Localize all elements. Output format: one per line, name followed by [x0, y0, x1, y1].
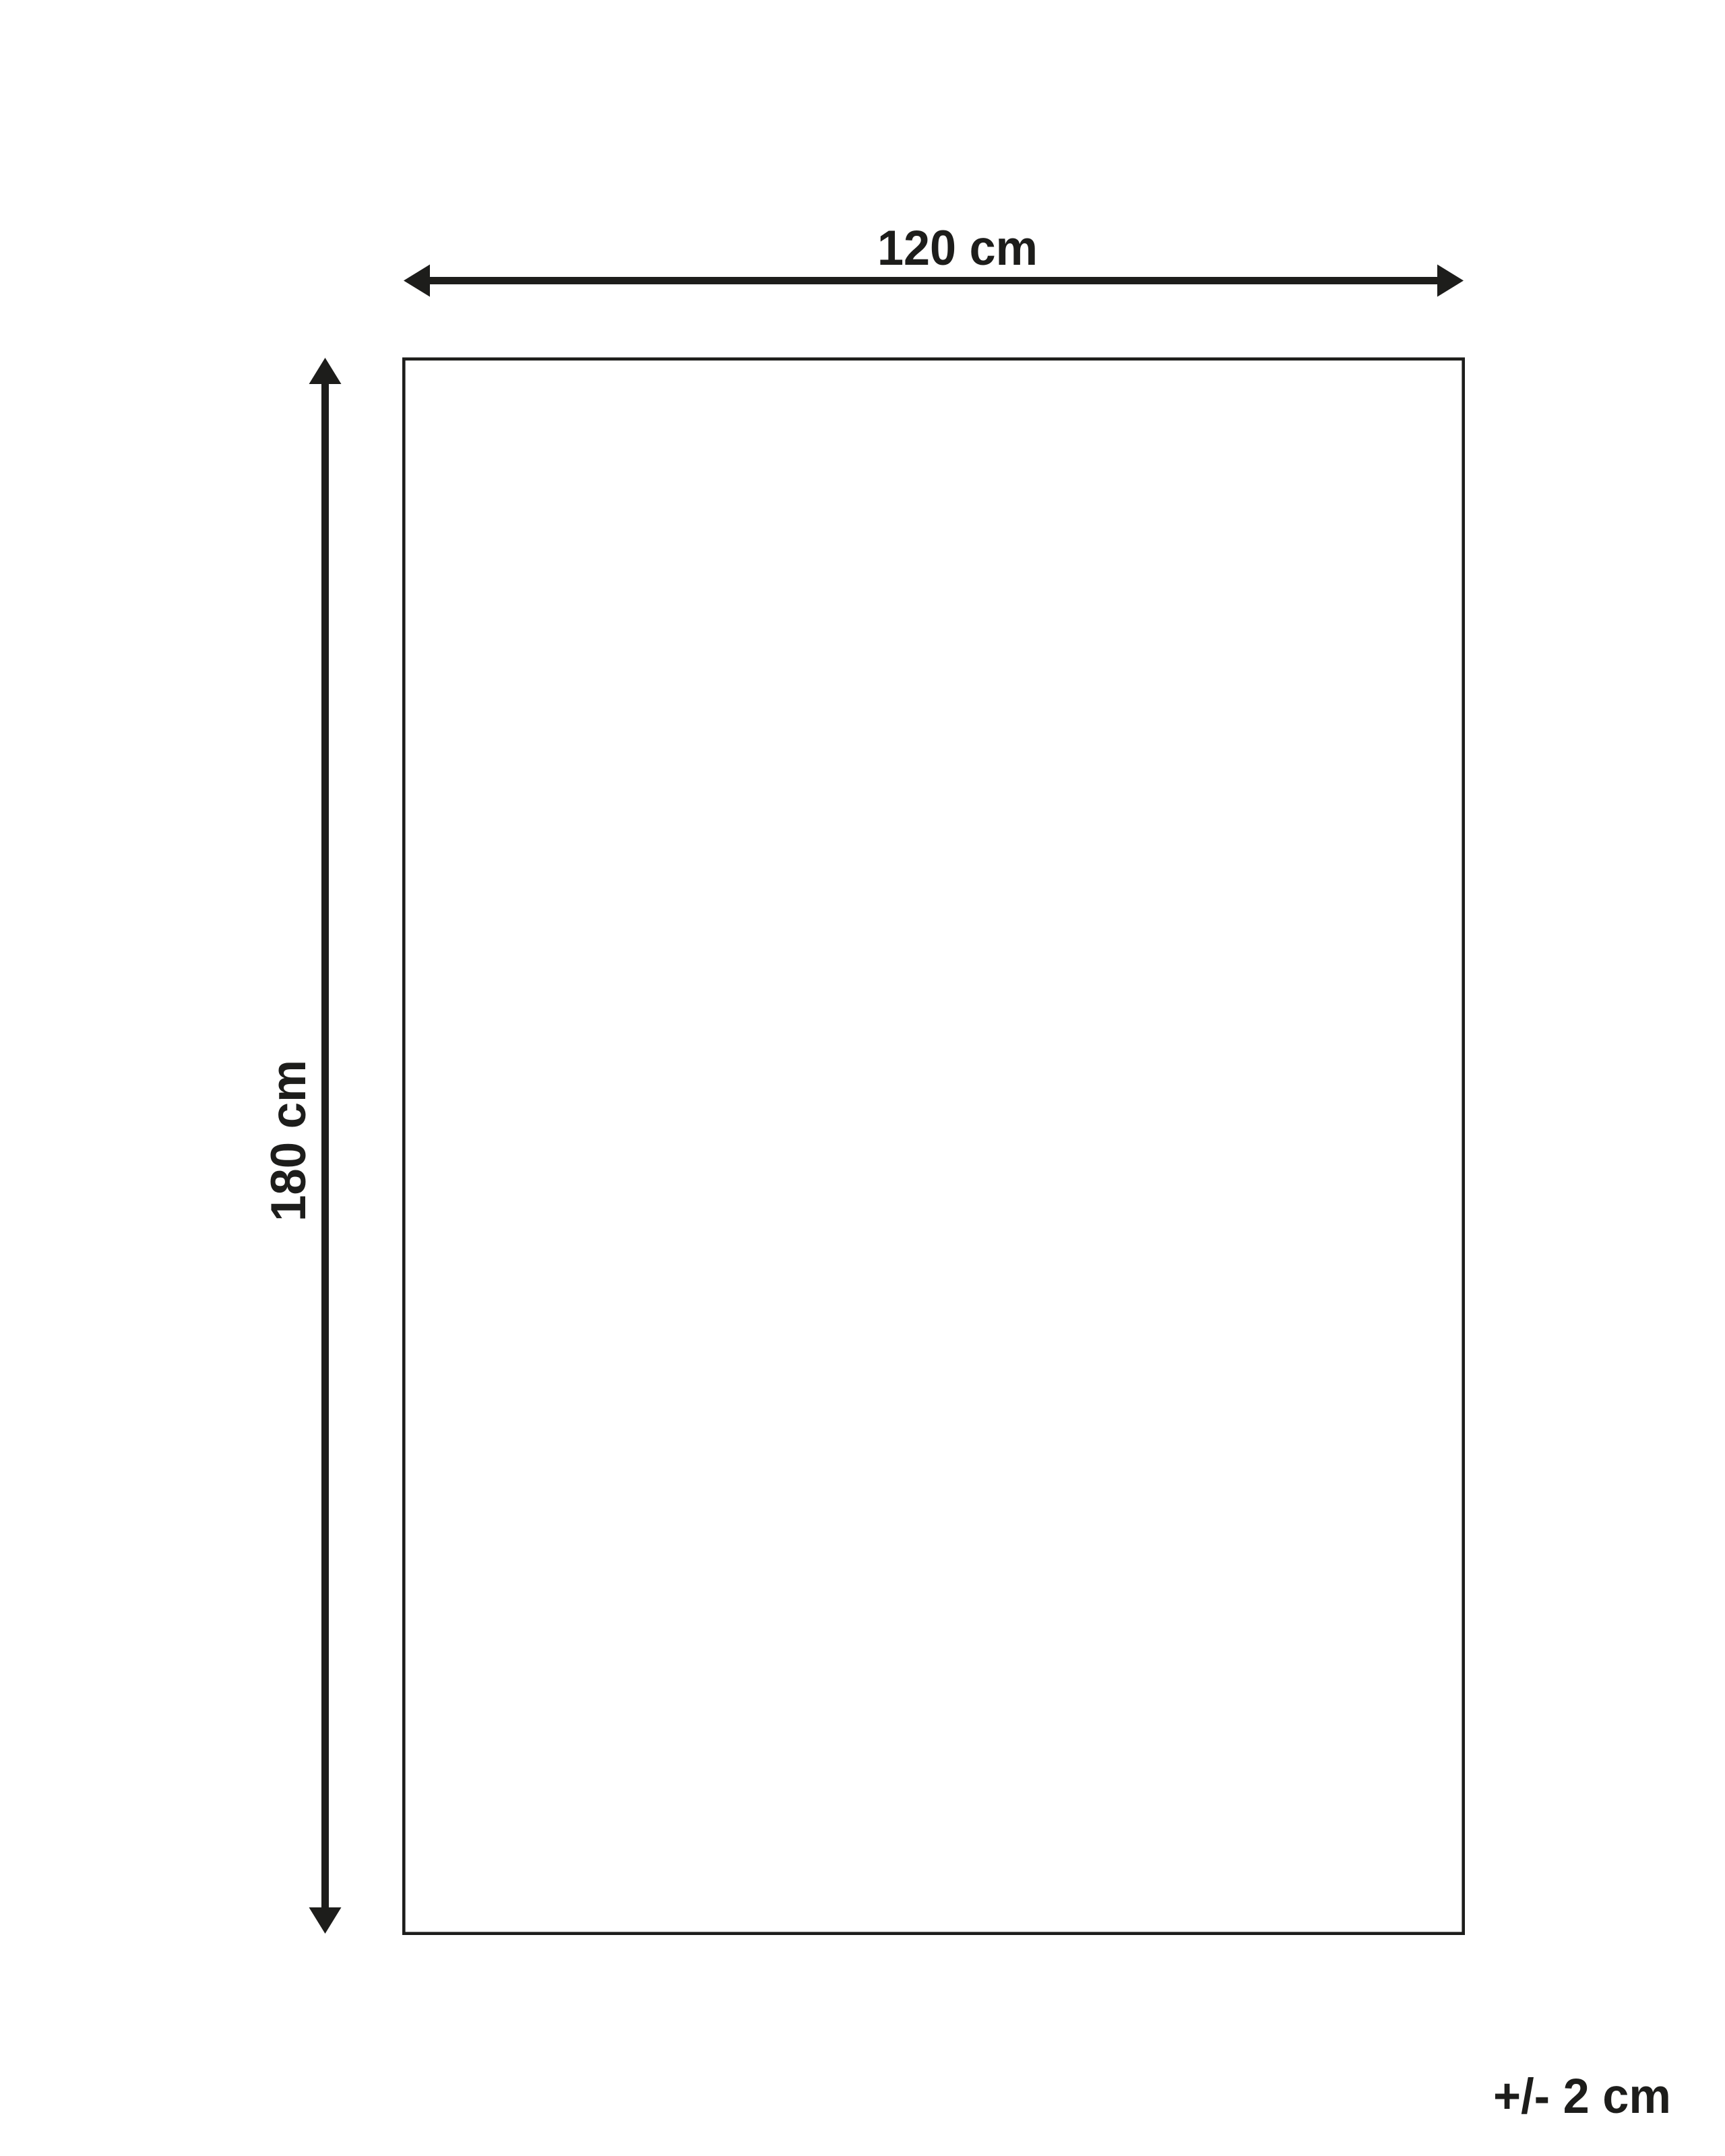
svg-text:180 cm: 180 cm — [261, 1060, 316, 1222]
svg-text:+/- 2 cm: +/- 2 cm — [1493, 2069, 1671, 2124]
svg-text:120 cm: 120 cm — [877, 221, 1038, 276]
